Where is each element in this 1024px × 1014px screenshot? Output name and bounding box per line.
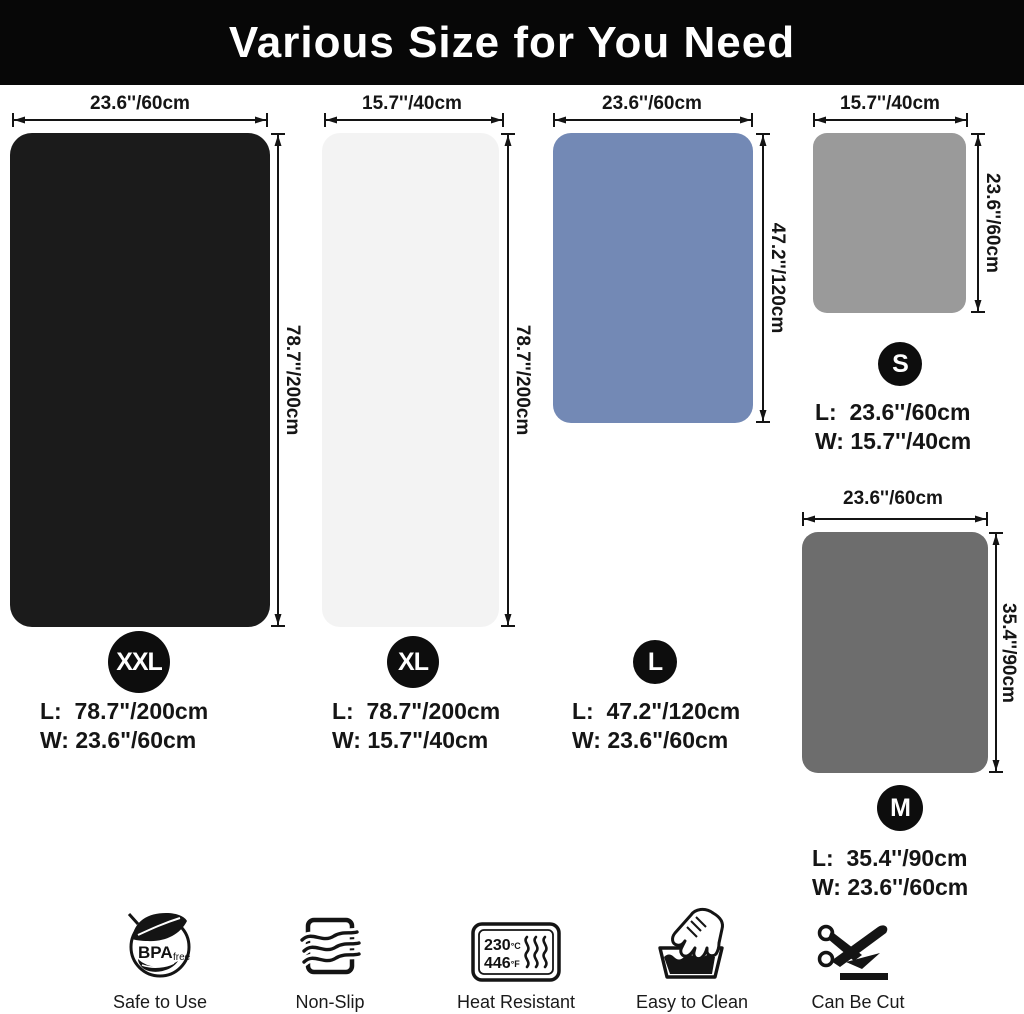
bpa-free-icon: BPA free — [75, 907, 245, 983]
can-be-cut-icon — [773, 907, 943, 983]
temp-fahrenheit-value: 446 — [484, 955, 511, 972]
size-diagram: 23.6''/60cm 78.7''/200cm XXL L: 78.7"/20… — [0, 85, 1024, 1014]
feature-easy-to-clean: Easy to Clean — [607, 907, 777, 1013]
svg-text:446°F: 446°F — [484, 955, 520, 972]
svg-text:230°C: 230°C — [484, 937, 521, 954]
feature-can-be-cut: Can Be Cut — [773, 907, 943, 1013]
bpa-free-text: free — [173, 952, 191, 963]
easy-to-clean-icon — [607, 907, 777, 983]
temp-fahrenheit-unit: °F — [511, 959, 521, 969]
non-slip-icon — [245, 907, 415, 983]
header-banner: Various Size for You Need — [0, 0, 1024, 85]
temp-celsius-value: 230 — [484, 937, 511, 954]
feature-label: Can Be Cut — [773, 992, 943, 1013]
feature-label: Non-Slip — [245, 992, 415, 1013]
feature-non-slip: Non-Slip — [245, 907, 415, 1013]
feature-safe-to-use: BPA free Safe to Use — [75, 907, 245, 1013]
feature-label: Safe to Use — [75, 992, 245, 1013]
feature-label: Heat Resistant — [431, 992, 601, 1013]
heat-resistant-icon: 230°C 446°F — [431, 907, 601, 983]
feature-heat-resistant: 230°C 446°F Heat Resistant — [431, 907, 601, 1013]
temp-celsius-unit: °C — [511, 941, 522, 951]
feature-label: Easy to Clean — [607, 992, 777, 1013]
feature-row: BPA free Safe to Use — [0, 85, 1024, 1014]
bpa-text: BPA — [138, 943, 173, 962]
page-title: Various Size for You Need — [229, 18, 795, 68]
